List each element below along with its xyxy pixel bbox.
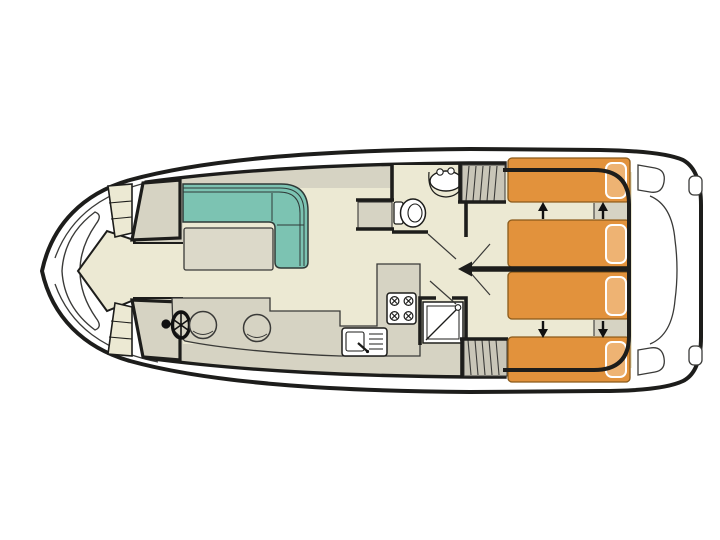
stairs-bottom: [460, 338, 508, 377]
sink-icon: [342, 328, 387, 356]
helm-stool-1: [190, 312, 217, 339]
pillow-3: [606, 277, 626, 315]
helm-stool-2: [244, 315, 271, 342]
shower-tray-icon: [423, 302, 463, 343]
stern-cleat-top: [689, 176, 702, 195]
toilet-icon: [394, 199, 426, 227]
stairs-top: [458, 164, 506, 203]
bed-gap-deck-bottom: [594, 320, 630, 336]
stove-icon: [387, 293, 416, 324]
bathroom-vanity: [358, 202, 392, 228]
boat-floor-plan: [0, 0, 720, 540]
dinette-table: [184, 228, 273, 270]
shower-room: [420, 298, 466, 345]
floor-plan-canvas: [0, 0, 720, 540]
pillow-2: [606, 225, 626, 263]
stern-cleat-bottom: [689, 346, 702, 365]
